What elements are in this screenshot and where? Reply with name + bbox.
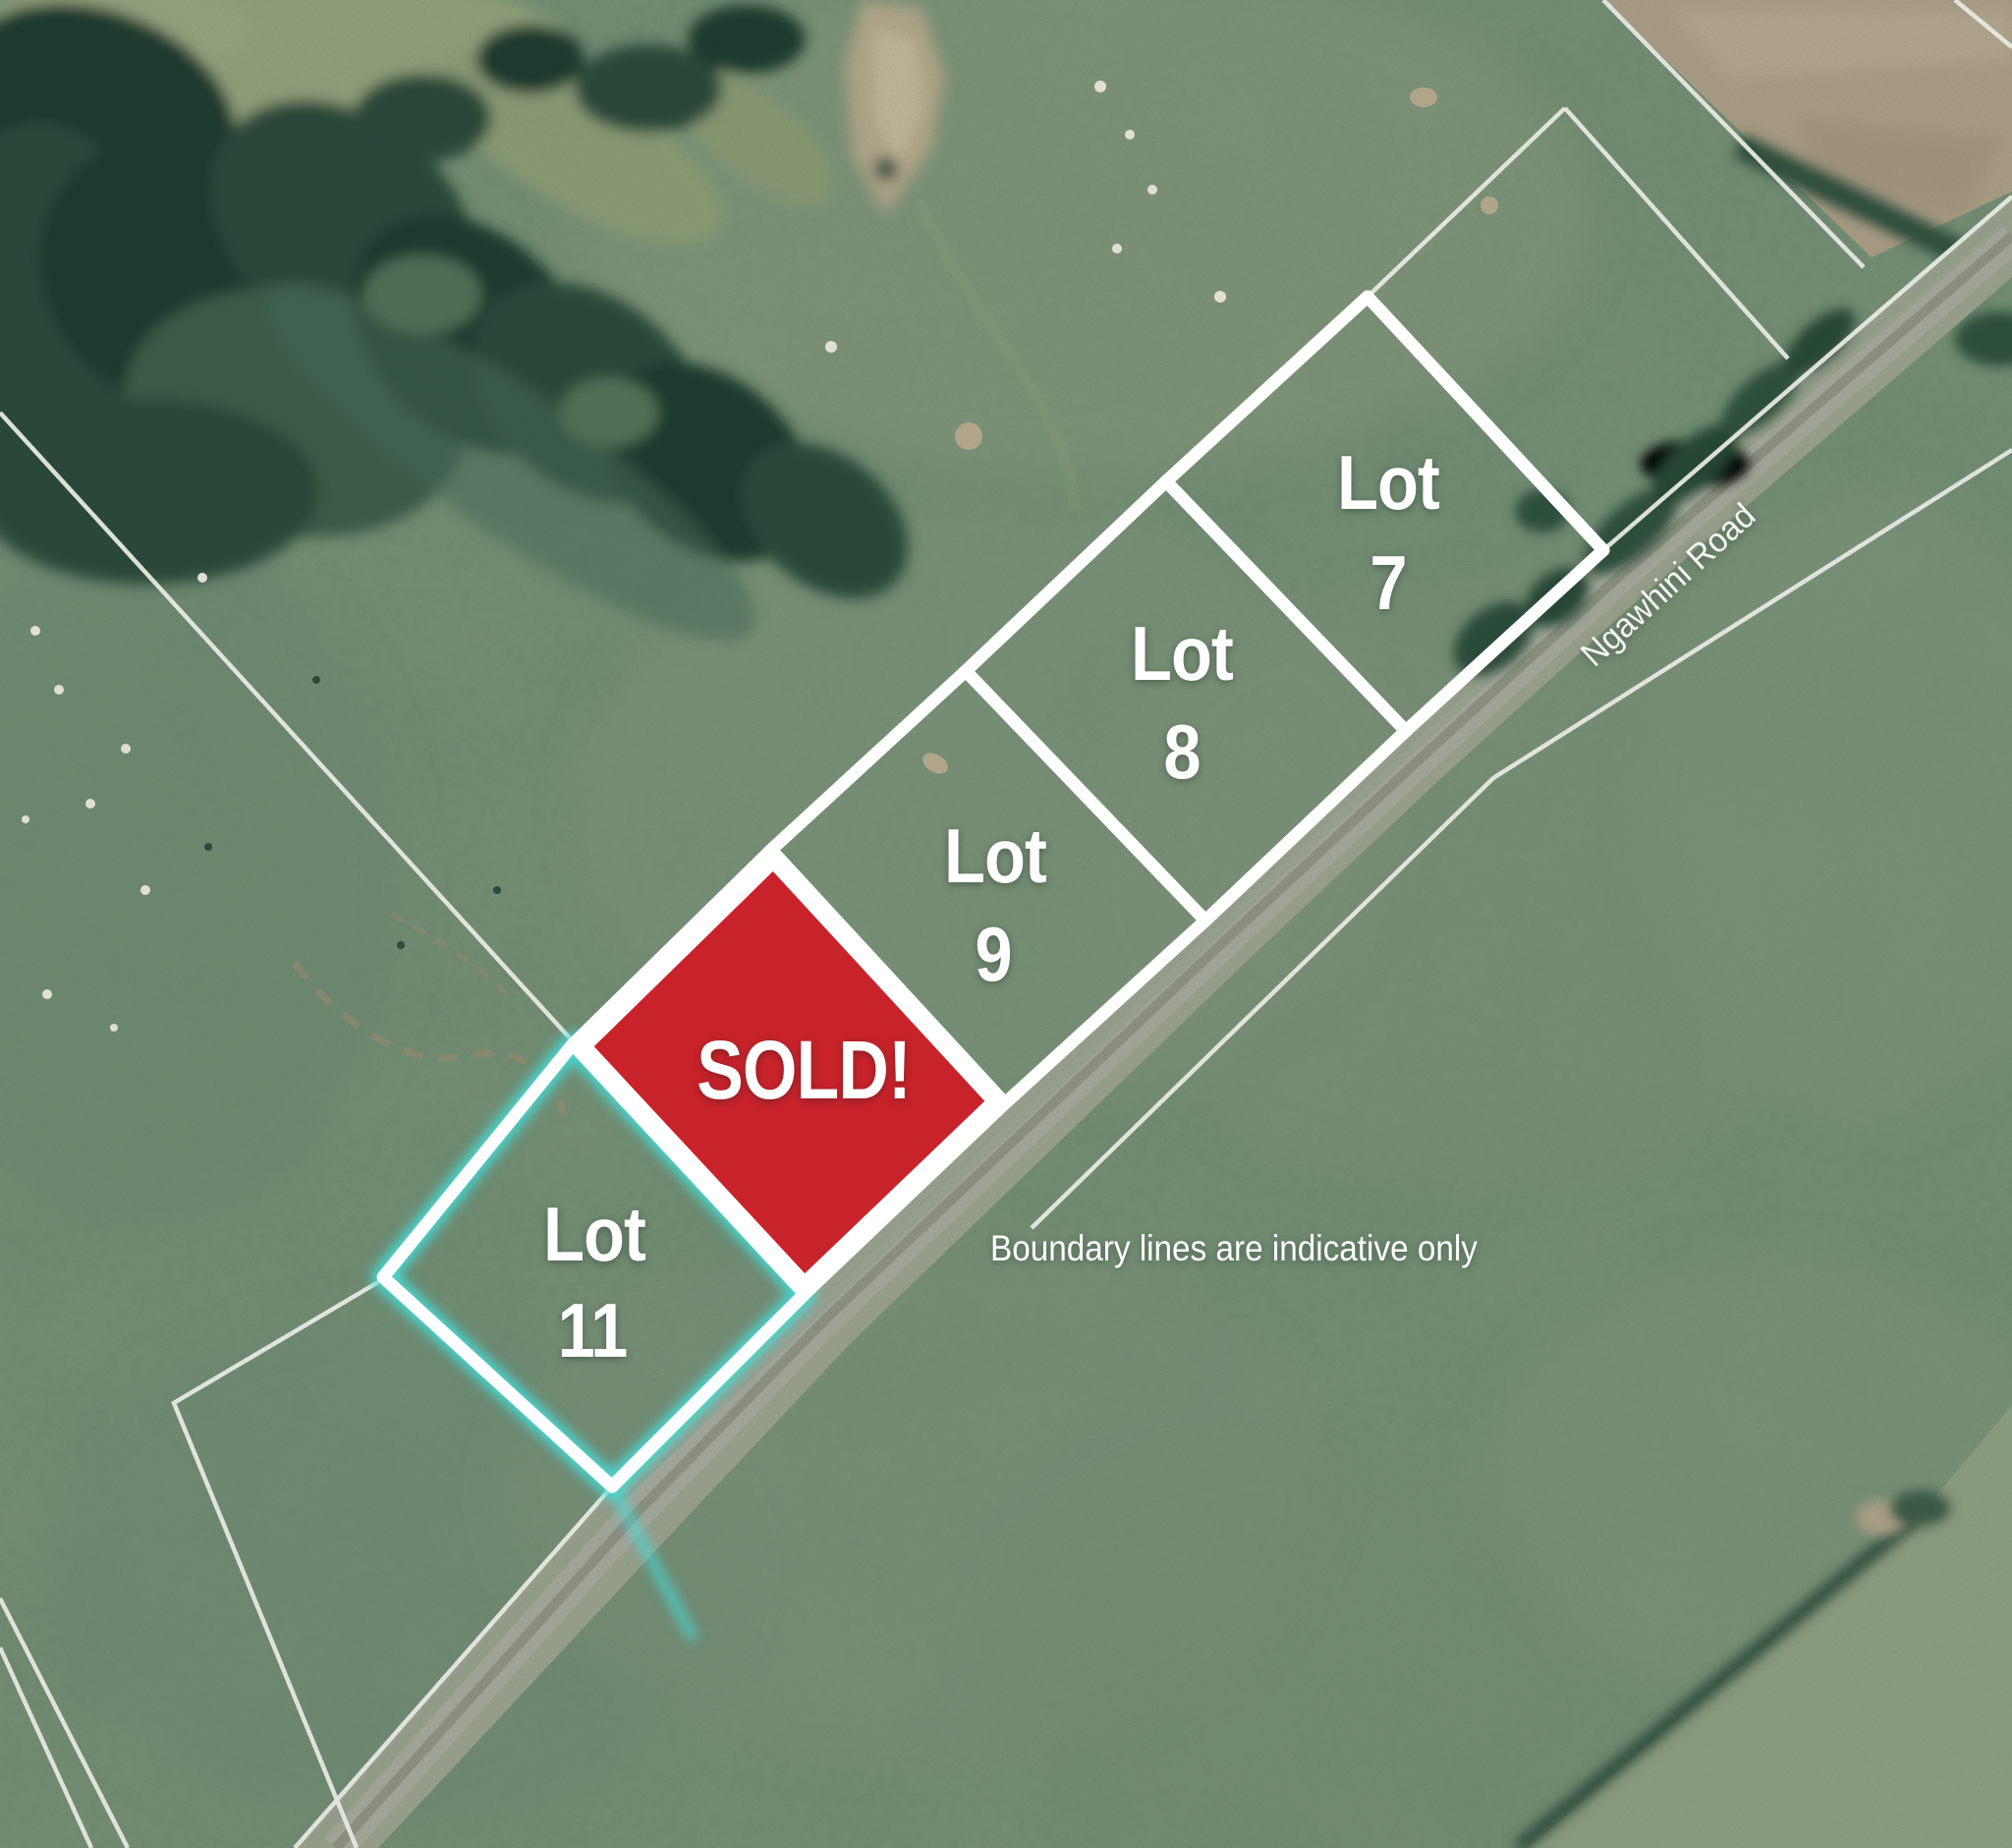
lot-7-number: 7 — [1369, 539, 1406, 626]
disclaimer: Boundary lines are indicative only — [990, 1228, 1478, 1268]
disclaimer-text: Boundary lines are indicative only — [990, 1228, 1478, 1268]
lot-9-number: 9 — [975, 911, 1011, 997]
lot-8-word: Lot — [1131, 610, 1234, 697]
lot-11-word: Lot — [543, 1191, 646, 1277]
sold-text: SOLD! — [697, 1023, 911, 1116]
lot-8-number: 8 — [1163, 708, 1200, 795]
map-scene: Lot 7 Lot 8 Lot 9 Lot 11 SOLD! Boundary … — [0, 0, 2012, 1848]
lot-11-number: 11 — [558, 1287, 628, 1373]
sold-label: SOLD! — [697, 1023, 911, 1116]
lot-7-word: Lot — [1337, 439, 1440, 526]
aerial-lot-map: Lot 7 Lot 8 Lot 9 Lot 11 SOLD! Boundary … — [0, 0, 2012, 1848]
lot-9-word: Lot — [944, 812, 1047, 899]
